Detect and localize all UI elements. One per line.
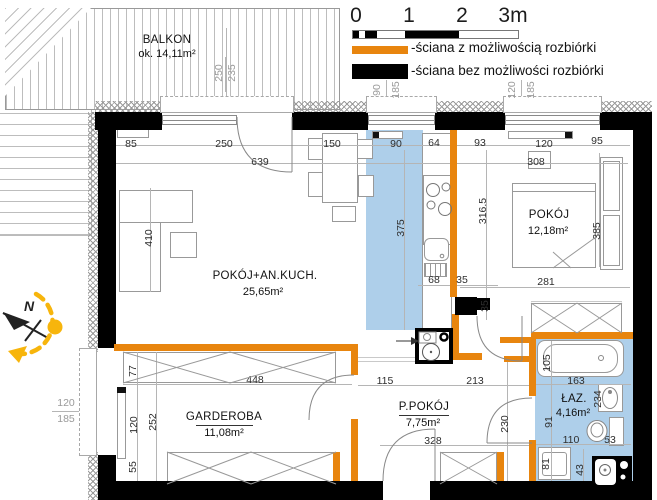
- dimension-label: 213: [466, 376, 484, 387]
- wall-demolishable: [504, 356, 529, 362]
- radiator-valve: [117, 387, 126, 393]
- dimension-label: 77: [128, 365, 139, 377]
- wall-demolishable: [531, 332, 633, 339]
- wall-demolishable: [114, 344, 358, 351]
- dimension-label: 234: [593, 390, 604, 408]
- bathtub-inner: [543, 344, 618, 373]
- coffee-table: [170, 232, 197, 258]
- wall-demolishable: [529, 338, 536, 396]
- dimension-label: 55: [128, 461, 139, 473]
- insulation-hatch: [88, 452, 98, 500]
- dimension-label: 91: [544, 416, 555, 428]
- dimension-label: 93: [474, 138, 486, 149]
- dimension-line: [380, 445, 533, 446]
- window-sill: [503, 96, 602, 113]
- label-underline: [399, 415, 449, 416]
- dimension-label: 53: [604, 435, 616, 446]
- dimension-label: 281: [537, 277, 555, 288]
- window-spec-label: 185: [526, 81, 537, 99]
- window-spec-label: 185: [57, 414, 75, 425]
- dimension-line: [404, 150, 405, 330]
- window-spec-label: 235: [227, 64, 238, 82]
- legend-label-demolishable: -ściana z możliwością rozbiórki: [411, 40, 596, 55]
- wardrobe-row: [123, 352, 336, 383]
- radiator: [117, 391, 126, 459]
- dimension-label: 308: [527, 157, 545, 168]
- insulation-hatch: [95, 101, 162, 112]
- scale-bar: [352, 30, 519, 39]
- label-underline: [196, 425, 253, 426]
- insulation-hatch: [435, 101, 505, 112]
- dimension-label: 95: [591, 136, 603, 147]
- scale-tick-2: 2: [456, 4, 468, 28]
- closet-wall-line: [531, 301, 622, 302]
- kitchen-sink: [424, 238, 449, 261]
- dimension-label: 410: [144, 229, 155, 247]
- wall-demolishable: [497, 452, 504, 481]
- room-label-ppokoj: P.POKÓJ: [399, 401, 449, 413]
- legend-label-solid: -ściana bez możliwości rozbiórki: [411, 63, 604, 78]
- scale-tick-0: 0: [350, 4, 362, 28]
- dimension-label: 64: [428, 138, 440, 149]
- dimension-label: 250: [215, 139, 233, 150]
- room-area-pokoj: 12,18m²: [528, 225, 568, 237]
- room-area-garderoba: 11,08m²: [204, 427, 244, 439]
- dimension-label: 85: [125, 139, 137, 150]
- dimension-line: [486, 150, 487, 320]
- dimension-label: 105: [542, 354, 553, 372]
- wardrobe-door: [603, 161, 620, 211]
- window-spec-label: 250: [214, 64, 225, 82]
- wall-demolishable: [453, 353, 482, 360]
- window-90: [368, 115, 435, 125]
- insulation-hatch: [292, 101, 368, 112]
- passage-line: [358, 357, 417, 358]
- wall-pillar: [455, 297, 477, 315]
- compass-north-label: N: [24, 298, 34, 314]
- bed-headboard-line: [512, 191, 596, 192]
- radiator: [117, 129, 149, 138]
- chair: [332, 206, 356, 222]
- dimension-label: 150: [323, 139, 341, 150]
- dimension-label: 120: [129, 416, 140, 434]
- dimension-label: 375: [396, 219, 407, 237]
- room-area-living: 25,65m²: [243, 286, 283, 298]
- insulation-hatch: [88, 112, 98, 352]
- wall-solid: [292, 112, 368, 130]
- wall-demolishable: [529, 440, 536, 481]
- dimension-label: 110: [563, 435, 580, 446]
- wall-demolishable: [333, 452, 340, 481]
- dimension-label: 316.5: [478, 198, 489, 224]
- utility-sink: [595, 459, 616, 485]
- window-spec-label: 120: [507, 81, 518, 99]
- chair: [308, 172, 323, 197]
- dimension-label: 90: [390, 139, 402, 150]
- dimension-label: 115: [377, 376, 394, 387]
- radiator-valve: [565, 132, 572, 138]
- balcony-fixed-glazing: [162, 115, 237, 125]
- room-label-garderoba: GARDEROBA: [186, 411, 262, 423]
- window-spec-label: 90: [372, 84, 383, 96]
- dimension-label: 252: [148, 413, 159, 431]
- scale-tick-3: 3m: [498, 4, 527, 28]
- wall-demolishable: [351, 419, 358, 481]
- wall-solid: [435, 112, 505, 130]
- dimension-label: 81: [541, 458, 552, 470]
- wc-cabin: [415, 328, 453, 364]
- left-wall-window: [79, 348, 97, 456]
- dimension-label: 120: [535, 139, 553, 150]
- window-120: [505, 115, 600, 125]
- radiator-valve: [373, 132, 379, 138]
- room-area-ppokoj: 7,75m²: [406, 417, 440, 429]
- room-label-living: POKÓJ+AN.KUCH.: [213, 270, 318, 282]
- dimension-label: 35: [456, 275, 468, 286]
- chair: [358, 175, 374, 197]
- dimension-label: 163: [567, 376, 585, 387]
- insulation-hatch: [600, 101, 652, 112]
- wall-solid: [98, 112, 116, 348]
- scale-tick-1: 1: [403, 4, 415, 28]
- passage-line: [358, 361, 417, 362]
- dimension-label: 639: [251, 157, 269, 168]
- room-area-balkon: ok. 14,11m²: [138, 48, 195, 60]
- compass-arc-arrowhead: [8, 346, 27, 363]
- dimension-label: 68: [428, 275, 440, 286]
- hall-wardrobe: [440, 452, 497, 484]
- dimension-label: 328: [424, 436, 442, 447]
- wall-demolishable: [351, 351, 358, 375]
- balcony-door-sill: [160, 96, 294, 113]
- room-label-balkon: BALKON: [143, 34, 191, 46]
- dimension-label: 448: [246, 375, 264, 386]
- wall-solid: [98, 481, 383, 500]
- dimension-label: 35: [480, 300, 491, 312]
- floor-plan: 0 1 2 3m -ściana z możliwością rozbiórki…: [0, 0, 657, 500]
- wardrobe-door: [603, 215, 620, 266]
- compass-dot: [48, 320, 63, 335]
- roof-hatch-area: [0, 110, 92, 236]
- room-label-laz: ŁAZ.: [561, 393, 587, 405]
- chair: [357, 139, 373, 159]
- sofa: [119, 190, 193, 223]
- window-spec-label: 120: [57, 398, 75, 409]
- chair: [308, 138, 323, 160]
- wall-solid: [633, 112, 652, 500]
- dimension-label: 43: [575, 464, 586, 476]
- wall-demolishable: [450, 130, 457, 297]
- window-spec-label: 185: [391, 81, 402, 99]
- dimension-line: [599, 153, 600, 267]
- dimension-line: [123, 384, 352, 385]
- dimension-label: 230: [500, 415, 511, 433]
- dimension-label: 385: [592, 222, 603, 240]
- built-in-closet: [531, 303, 622, 333]
- room-label-pokoj: POKÓJ: [529, 209, 569, 221]
- room-area-laz: 4,16m²: [556, 407, 590, 419]
- stove: [423, 175, 451, 245]
- dimension-line: [115, 163, 628, 164]
- legend-swatch-solid: [352, 64, 408, 79]
- wardrobe-row: [167, 452, 336, 484]
- legend-swatch-demolishable: [352, 46, 408, 54]
